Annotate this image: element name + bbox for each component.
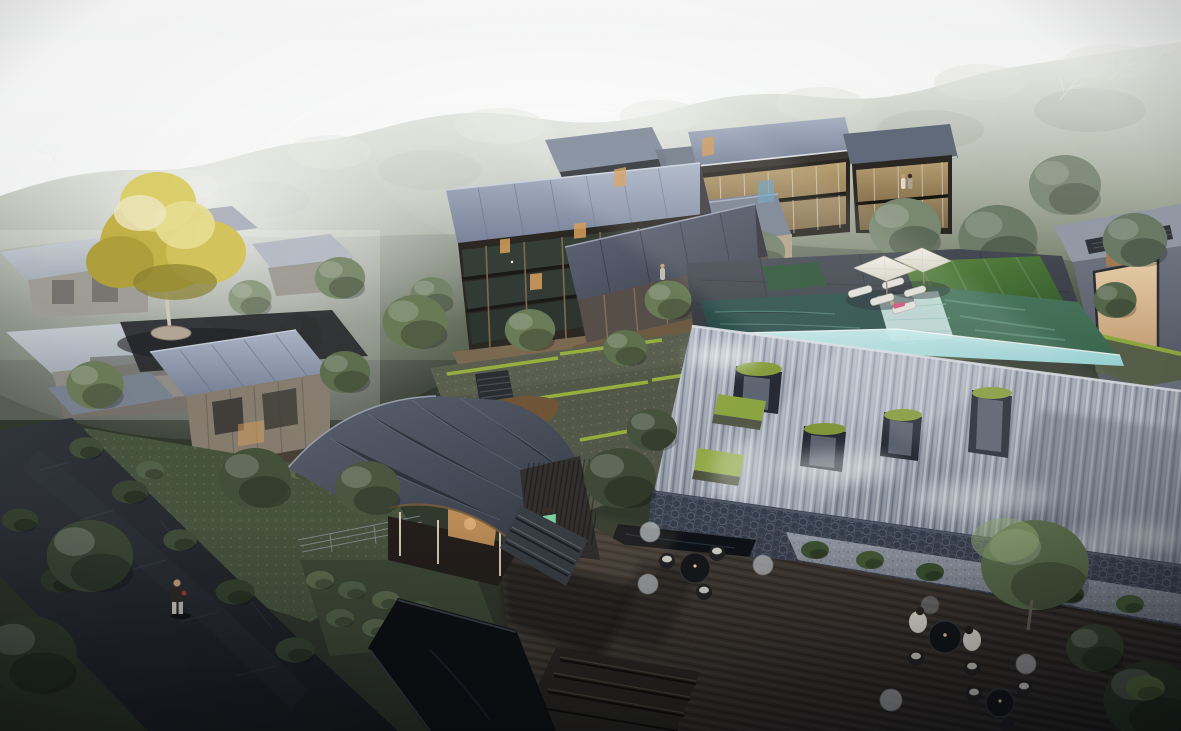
bottom-shade xyxy=(0,520,1181,731)
resort-rendering xyxy=(0,0,1181,731)
rendering-canvas xyxy=(0,0,1181,731)
